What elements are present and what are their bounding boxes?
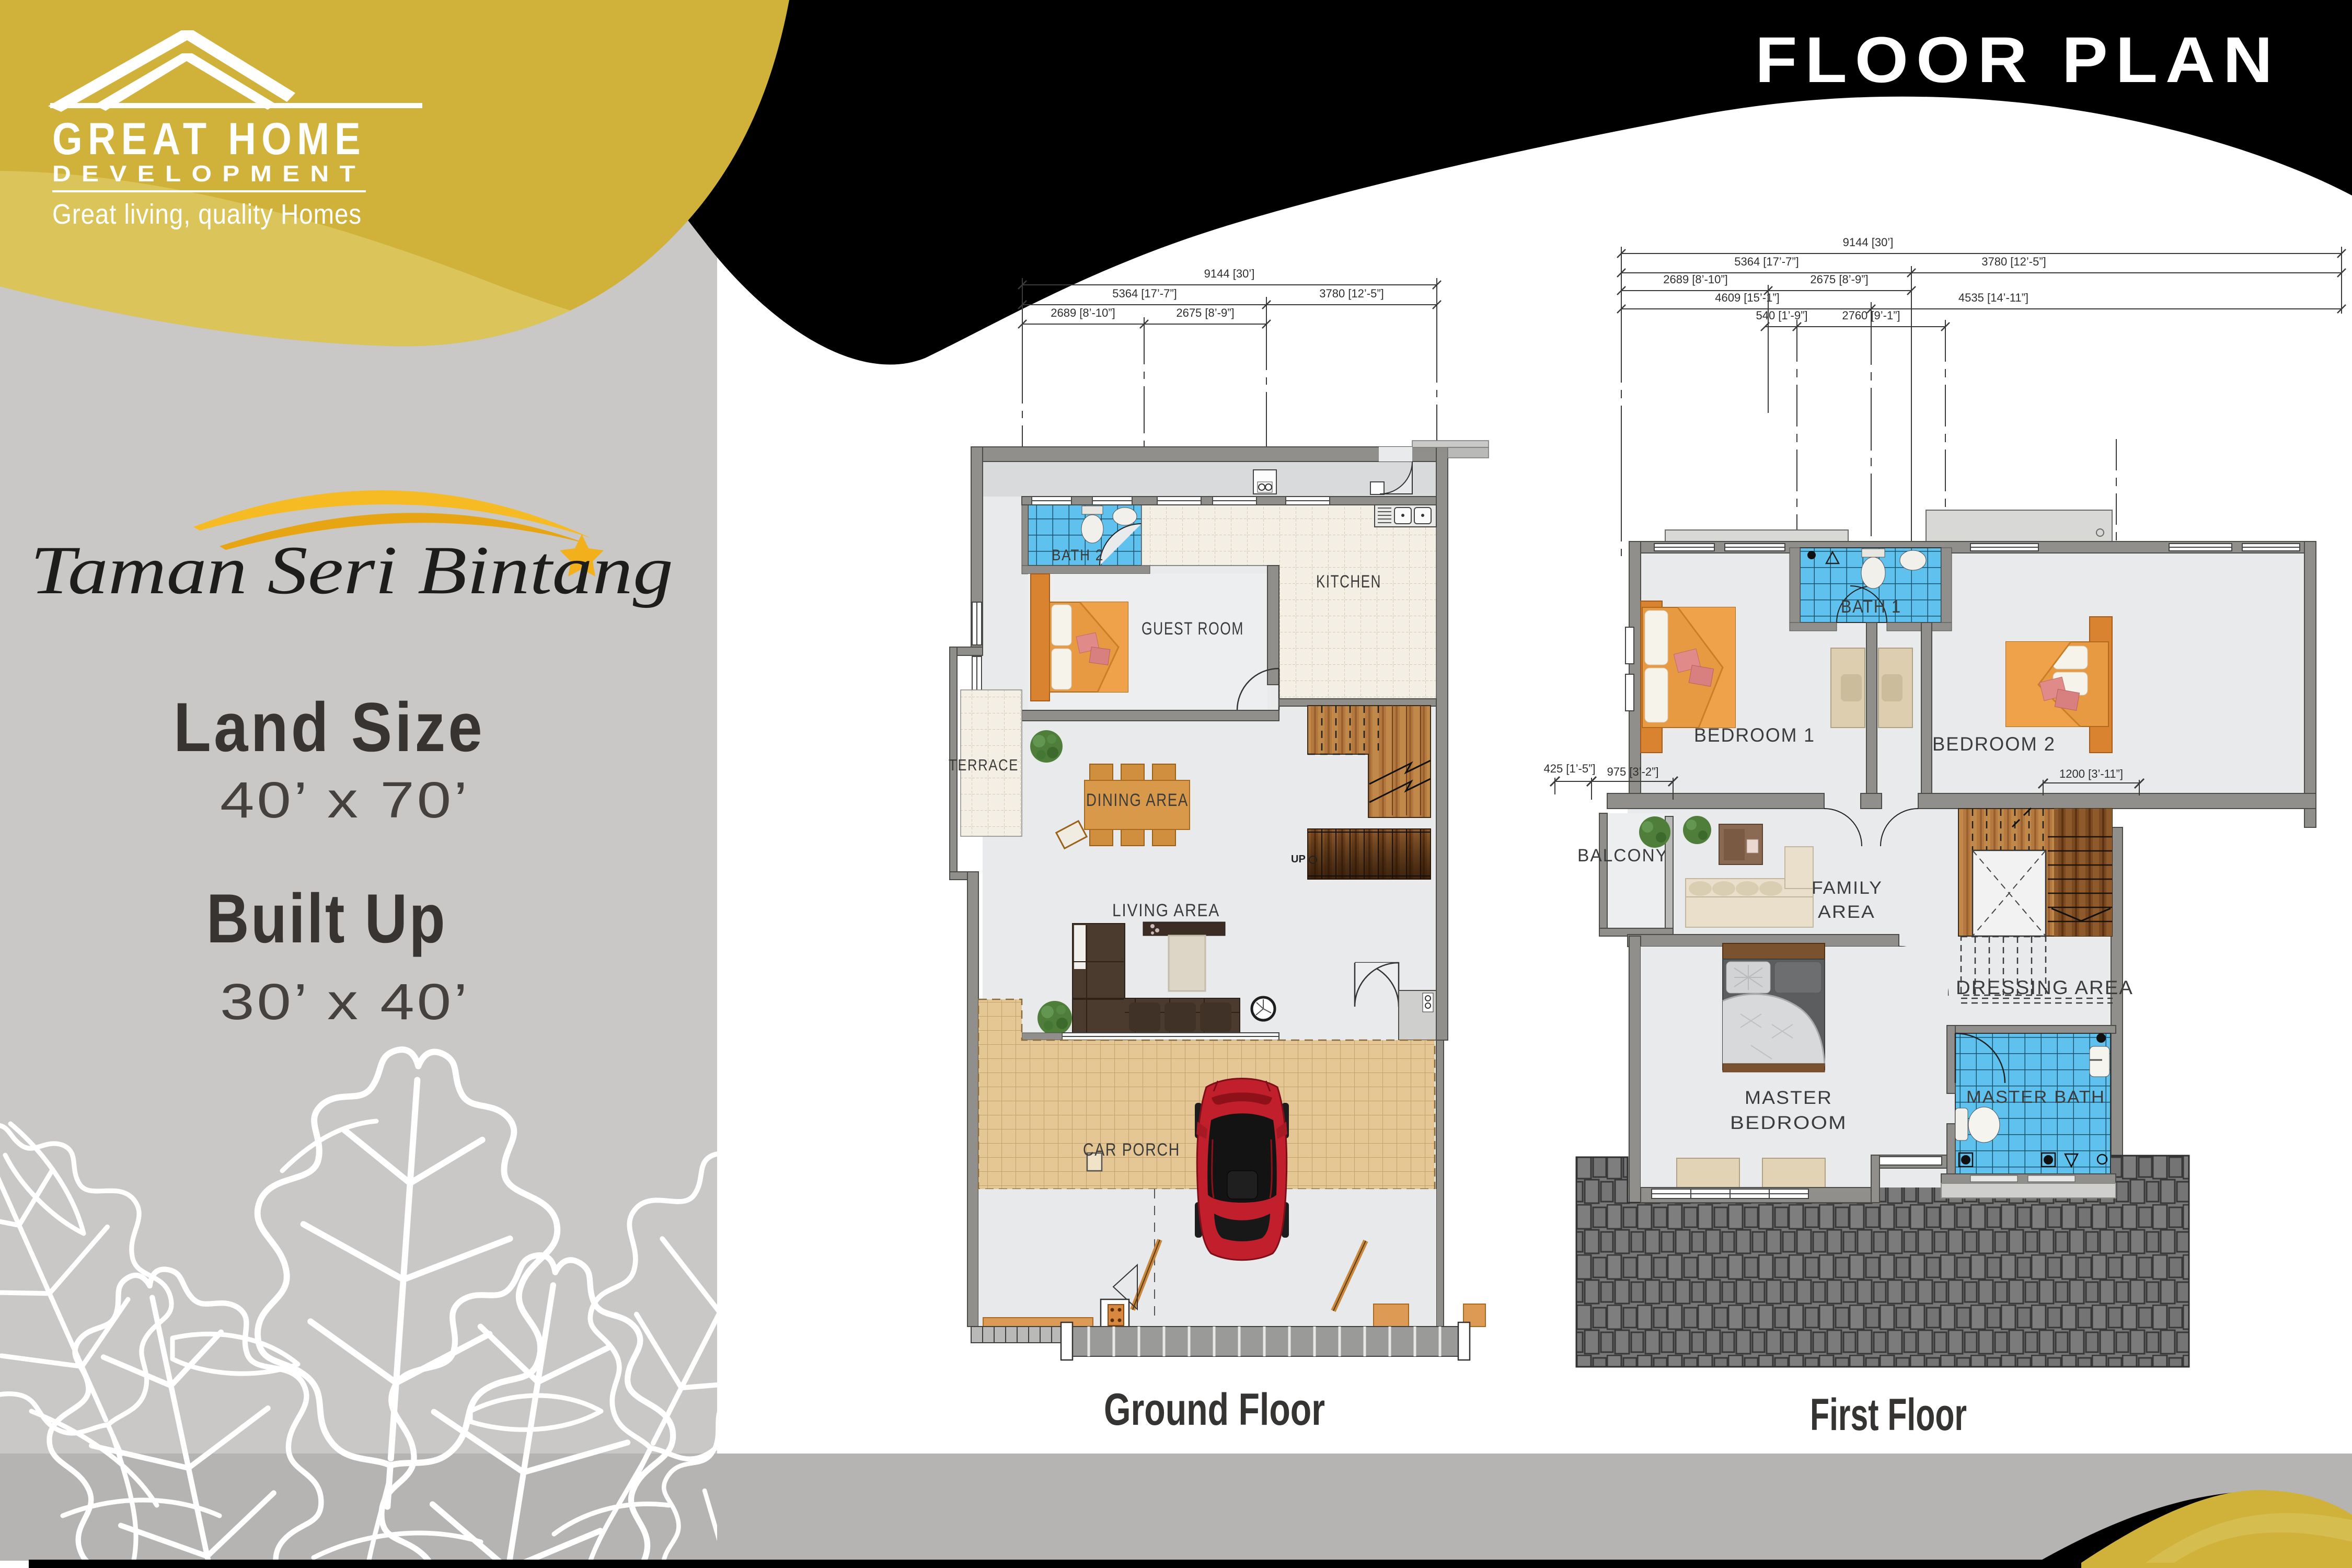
svg-text:2760 [9’-1”]: 2760 [9’-1”] (1842, 309, 1900, 322)
svg-text:Land Size: Land Size (174, 689, 485, 766)
svg-text:Ground Floor: Ground Floor (1104, 1385, 1325, 1435)
svg-text:30’ x 40’: 30’ x 40’ (220, 973, 470, 1030)
svg-text:2689 [8’-10”]: 2689 [8’-10”] (1663, 273, 1728, 286)
svg-text:DEVELOPMENT: DEVELOPMENT (52, 161, 366, 187)
svg-text:GUEST ROOM: GUEST ROOM (1142, 619, 1244, 639)
svg-text:BEDROOM: BEDROOM (1730, 1113, 1847, 1133)
svg-text:40’ x 70’: 40’ x 70’ (220, 771, 470, 828)
svg-text:2675 [8’-9”]: 2675 [8’-9”] (1176, 306, 1234, 319)
svg-text:BATH 1: BATH 1 (1841, 597, 1901, 617)
svg-text:Great living, quality Homes: Great living, quality Homes (52, 199, 362, 230)
svg-text:BEDROOM 1: BEDROOM 1 (1694, 724, 1815, 746)
svg-text:4535 [14’-11”]: 4535 [14’-11”] (1958, 291, 2028, 304)
svg-text:3780 [12’-5”]: 3780 [12’-5”] (1319, 287, 1384, 300)
svg-text:975 [3’-2”]: 975 [3’-2”] (1607, 765, 1658, 778)
svg-text:LIVING AREA: LIVING AREA (1112, 901, 1220, 920)
svg-text:4609 [15’-1”]: 4609 [15’-1”] (1715, 291, 1780, 304)
svg-text:AREA: AREA (1818, 902, 1875, 922)
svg-text:MASTER BATH: MASTER BATH (1966, 1087, 2105, 1106)
svg-text:2675 [8’-9”]: 2675 [8’-9”] (1810, 273, 1868, 286)
svg-text:CAR PORCH: CAR PORCH (1083, 1140, 1180, 1160)
svg-text:425 [1’-5”]: 425 [1’-5”] (1543, 762, 1595, 775)
svg-text:Taman Seri Bintang: Taman Seri Bintang (30, 532, 673, 608)
svg-text:UP: UP (1291, 854, 1306, 865)
svg-text:First Floor: First Floor (1810, 1390, 1967, 1440)
svg-text:FAMILY: FAMILY (1812, 878, 1883, 898)
svg-text:FLOOR PLAN: FLOOR PLAN (1755, 24, 2280, 96)
svg-text:BATH 2: BATH 2 (1052, 547, 1104, 564)
svg-text:DINING AREA: DINING AREA (1086, 790, 1189, 810)
svg-text:9144 [30’]: 9144 [30’] (1204, 267, 1255, 280)
svg-text:KITCHEN: KITCHEN (1316, 572, 1381, 592)
svg-text:BEDROOM 2: BEDROOM 2 (1932, 733, 2056, 755)
svg-text:3780 [12’-5”]: 3780 [12’-5”] (1981, 255, 2046, 268)
svg-text:Built Up: Built Up (206, 880, 447, 958)
svg-text:5364 [17’-7”]: 5364 [17’-7”] (1734, 255, 1799, 268)
svg-text:TERRACE: TERRACE (949, 756, 1019, 774)
svg-text:MASTER: MASTER (1745, 1088, 1832, 1108)
svg-text:540 [1’-9”]: 540 [1’-9”] (1756, 309, 1807, 322)
svg-text:1200 [3’-11”]: 1200 [3’-11”] (2059, 767, 2123, 780)
svg-text:2689 [8’-10”]: 2689 [8’-10”] (1051, 306, 1115, 319)
svg-text:BALCONY: BALCONY (1577, 846, 1668, 866)
svg-text:DRESSING AREA: DRESSING AREA (1956, 977, 2134, 998)
svg-text:9144 [30’]: 9144 [30’] (1843, 236, 1894, 249)
svg-text:GREAT HOME: GREAT HOME (52, 114, 366, 164)
svg-text:5364 [17’-7”]: 5364 [17’-7”] (1112, 287, 1177, 300)
